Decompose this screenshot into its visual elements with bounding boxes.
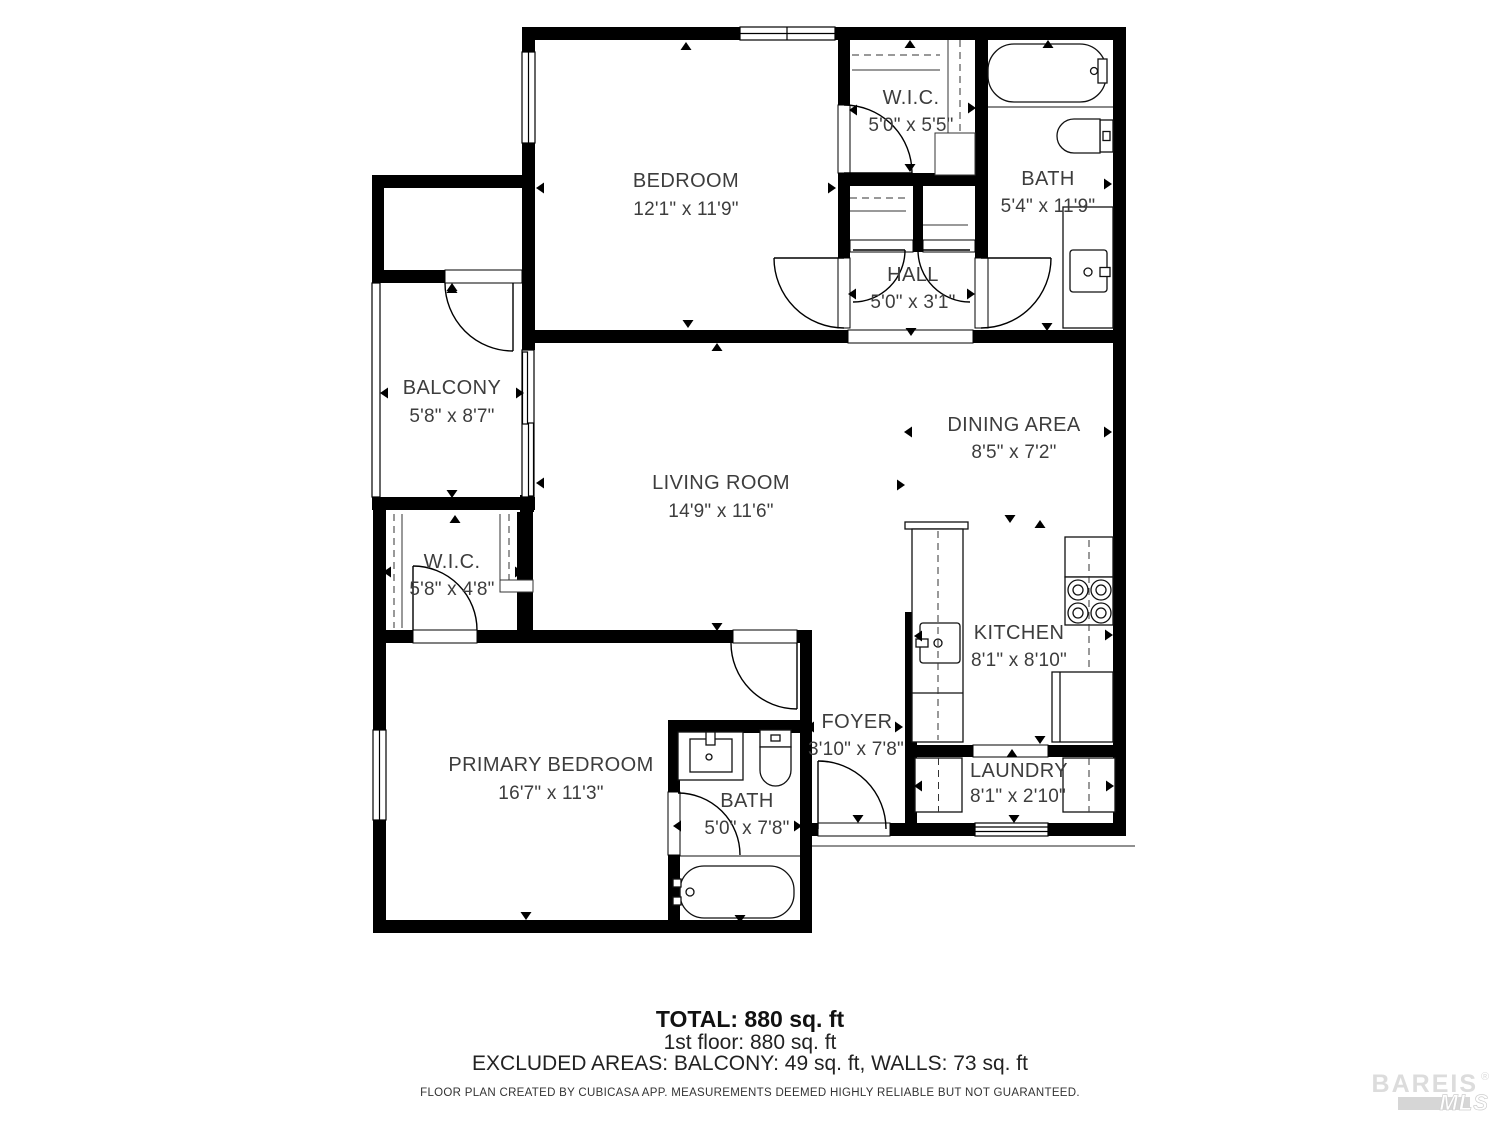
room-dims-dining-area: 8'5" x 7'2"	[971, 442, 1056, 463]
bathtub-icon-lower	[673, 866, 794, 918]
mls-logo-text: MLS	[1440, 1090, 1489, 1115]
sink-vanity-icon-lower	[678, 732, 743, 780]
room-dims-primary-bedroom: 16'7" x 11'3"	[498, 783, 603, 804]
bareis-mls-logo: BAREIS ® MLS	[1372, 1070, 1490, 1115]
window-bedroom-left	[522, 52, 535, 143]
room-label-kitchen: KITCHEN	[974, 622, 1065, 644]
door-hall-bath	[981, 258, 1051, 328]
floor-plan-page: BEDROOM 12'1" x 11'9" W.I.C. 5'0" x 5'5"…	[0, 0, 1500, 1125]
door-bedroom-hall	[774, 258, 844, 328]
registered-mark: ®	[1481, 1071, 1489, 1083]
room-dims-laundry: 8'1" x 2'10"	[970, 786, 1066, 807]
room-dims-wic-top: 5'0" x 5'5"	[868, 115, 953, 136]
fridge-icon	[1052, 672, 1113, 742]
front-door-opening	[818, 823, 890, 836]
room-dims-foyer: 3'10" x 7'8"	[808, 739, 904, 760]
room-label-primary-bedroom: PRIMARY BEDROOM	[448, 754, 653, 776]
room-dims-balcony: 5'8" x 8'7"	[409, 406, 494, 427]
room-label-dining-area: DINING AREA	[947, 414, 1081, 436]
disclaimer-text: FLOOR PLAN CREATED BY CUBICASA APP. MEAS…	[420, 1087, 1080, 1099]
room-label-hall: HALL	[887, 264, 939, 286]
balcony-railing	[372, 283, 380, 497]
door-front-entry	[818, 761, 886, 829]
window-laundry-bottom	[975, 823, 1048, 836]
footer: TOTAL: 880 sq. ft 1st floor: 880 sq. ft …	[420, 1006, 1080, 1099]
room-label-laundry: LAUNDRY	[970, 760, 1068, 782]
room-label-foyer: FOYER	[822, 711, 893, 733]
room-label-living-room: LIVING ROOM	[652, 472, 790, 494]
floor-plan-svg: BEDROOM 12'1" x 11'9" W.I.C. 5'0" x 5'5"…	[0, 0, 1500, 1125]
room-label-bath-top: BATH	[1021, 168, 1074, 190]
room-dims-wic-lower: 5'8" x 4'8"	[409, 579, 494, 600]
toilet-icon-top	[1057, 119, 1113, 153]
room-dims-bath-top: 5'4" x 11'9"	[1001, 196, 1096, 217]
floor-area-text: 1st floor: 880 sq. ft	[664, 1031, 837, 1054]
room-label-bath-lower: BATH	[720, 790, 773, 812]
room-dims-kitchen: 8'1" x 8'10"	[971, 650, 1067, 671]
room-dims-bedroom: 12'1" x 11'9"	[633, 199, 738, 220]
sliding-door-balcony	[522, 350, 534, 497]
door-storage-balcony	[445, 283, 513, 351]
total-area-text: TOTAL: 880 sq. ft	[656, 1006, 845, 1032]
room-dims-living-room: 14'9" x 11'6"	[668, 501, 773, 522]
bathtub-icon-top	[988, 44, 1107, 102]
window-bedroom-top	[740, 27, 835, 40]
room-label-wic-top: W.I.C.	[883, 87, 940, 109]
kitchen-island	[905, 522, 968, 742]
room-label-wic-lower: W.I.C.	[424, 551, 481, 573]
excluded-areas-text: EXCLUDED AREAS: BALCONY: 49 sq. ft, WALL…	[472, 1052, 1028, 1075]
room-dims-hall: 5'0" x 3'1"	[870, 292, 955, 313]
room-label-bedroom: BEDROOM	[633, 170, 739, 192]
sink-vanity-icon-top	[1063, 207, 1113, 328]
toilet-icon-lower	[760, 730, 791, 786]
window-primary-left	[373, 730, 386, 820]
door-living-primary	[731, 643, 797, 709]
room-label-balcony: BALCONY	[403, 377, 501, 399]
room-dims-bath-lower: 5'0" x 7'8"	[704, 818, 789, 839]
